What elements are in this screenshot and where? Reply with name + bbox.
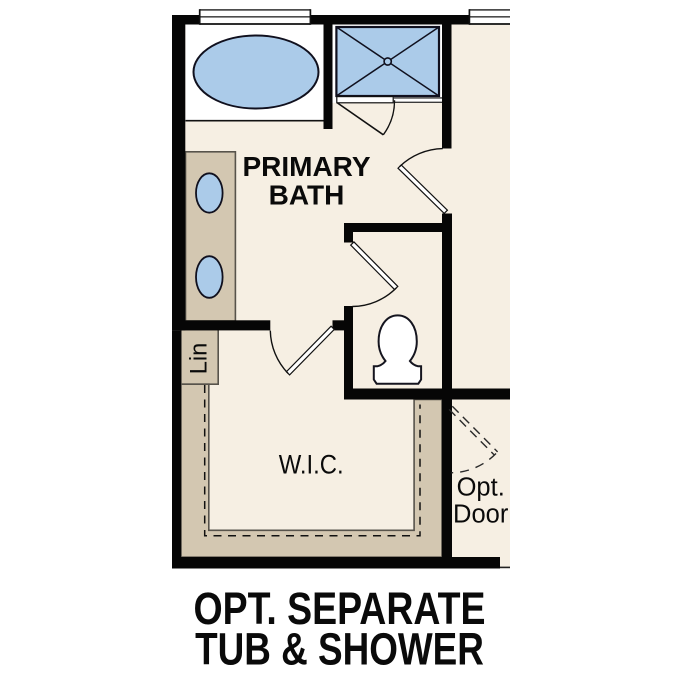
svg-text:Door: Door — [453, 501, 509, 529]
svg-text:BATH: BATH — [269, 179, 345, 210]
svg-text:PRIMARY: PRIMARY — [242, 151, 370, 182]
svg-text:Opt.: Opt. — [457, 473, 505, 501]
svg-text:Lin: Lin — [185, 343, 212, 375]
svg-text:TUB & SHOWER: TUB & SHOWER — [195, 623, 484, 674]
svg-text:W.I.C.: W.I.C. — [279, 449, 344, 479]
